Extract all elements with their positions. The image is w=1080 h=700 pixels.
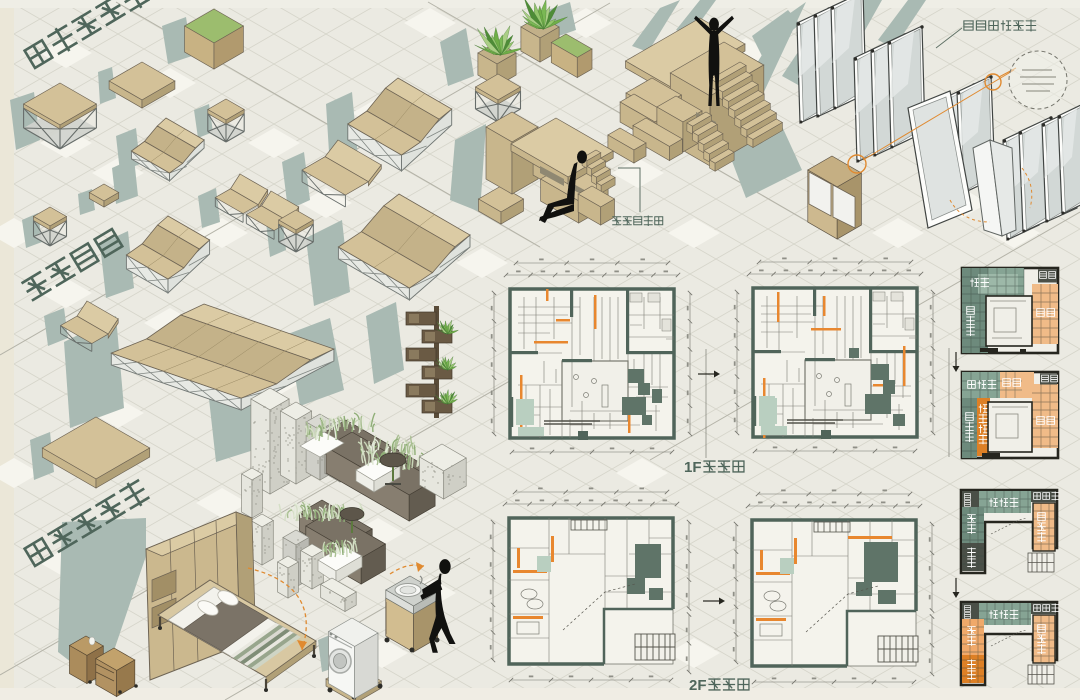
svg-text:1F: 1F (684, 459, 702, 476)
svg-text:2F: 2F (689, 677, 707, 694)
